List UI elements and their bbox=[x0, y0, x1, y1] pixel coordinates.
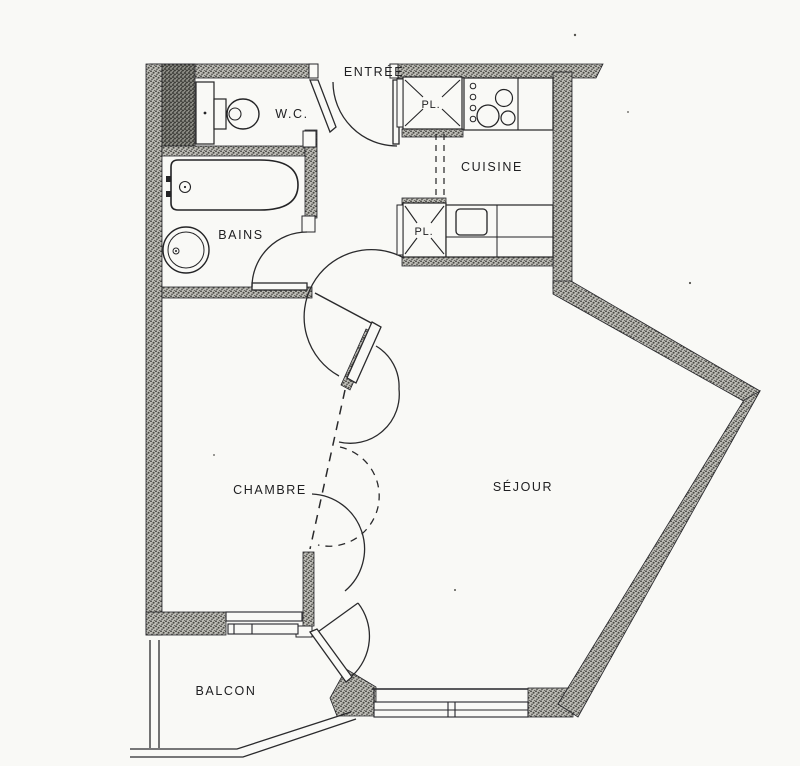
cap-bains-door-stub bbox=[302, 216, 315, 232]
chambre-window bbox=[226, 612, 302, 634]
hall-door bbox=[304, 250, 404, 444]
room-label-wc: W.C. bbox=[275, 107, 308, 121]
balcony-door bbox=[310, 603, 369, 682]
balcony-door-edge bbox=[315, 603, 358, 634]
room-label-bains: BAINS bbox=[218, 228, 264, 242]
chambre-sejour-partition bbox=[310, 390, 379, 591]
wall-partition-stub bbox=[303, 552, 314, 626]
wall-diagonal-lower bbox=[558, 391, 760, 717]
partition-solid-arc bbox=[312, 494, 365, 591]
partition-dashed-line bbox=[310, 390, 345, 549]
closet-label-lower: PL. bbox=[415, 226, 434, 238]
room-label-cuisine: CUISINE bbox=[461, 160, 523, 174]
wall-band-under-placard-upper bbox=[402, 129, 463, 137]
closet-label-upper: PL. bbox=[422, 99, 441, 111]
fixtures bbox=[163, 77, 553, 273]
wall-chambre-south bbox=[146, 612, 226, 635]
floor-plan-drawing: ENTRÉE W.C. CUISINE PL. PL. BAINS CHAMBR… bbox=[0, 0, 800, 766]
washbasin-icon bbox=[163, 227, 209, 273]
hall-door-leaf-line bbox=[315, 293, 375, 325]
cuisine-dashed-boundary bbox=[436, 134, 444, 200]
wall-left bbox=[146, 64, 162, 635]
bathtub-icon bbox=[166, 160, 298, 210]
room-labels: ENTRÉE W.C. CUISINE PL. PL. BAINS CHAMBR… bbox=[195, 64, 553, 698]
balcony-door-arc bbox=[352, 603, 369, 676]
wall-diagonal-upper bbox=[553, 281, 760, 403]
wall-balcony-post bbox=[330, 669, 376, 716]
balcony-door-leaf bbox=[310, 629, 352, 682]
room-label-sejour: SÉJOUR bbox=[493, 479, 553, 494]
sink-icon bbox=[456, 209, 487, 235]
wall-wc-south bbox=[162, 146, 305, 156]
hall-door-lower-arc bbox=[339, 346, 399, 443]
sejour-window bbox=[372, 689, 528, 717]
wall-band-under-counter bbox=[402, 257, 553, 266]
entree-door-arc bbox=[333, 82, 397, 146]
bains-door-leaf bbox=[252, 283, 307, 290]
wall-right bbox=[553, 72, 572, 289]
floor-plan-scan: ENTRÉE W.C. CUISINE PL. PL. BAINS CHAMBR… bbox=[0, 0, 800, 766]
wc-door-leaf bbox=[310, 80, 336, 132]
toilet-icon bbox=[196, 82, 259, 144]
cooktop-icon bbox=[464, 78, 553, 130]
hall-door-open-leaf bbox=[347, 322, 381, 383]
balcony-railing bbox=[130, 640, 356, 757]
kitchen-counter bbox=[446, 205, 553, 257]
room-label-entree: ENTRÉE bbox=[344, 64, 404, 79]
windows bbox=[226, 612, 528, 717]
cap-wc-east-top bbox=[303, 131, 316, 147]
entree-door bbox=[333, 80, 399, 146]
room-label-chambre: CHAMBRE bbox=[233, 483, 307, 497]
cap-entry-left bbox=[309, 64, 318, 78]
room-label-balcon: BALCON bbox=[195, 684, 256, 698]
